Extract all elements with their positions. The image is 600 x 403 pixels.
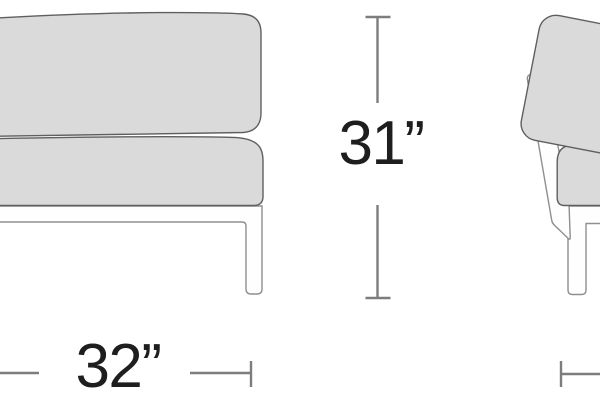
depth-dimension-partial (561, 361, 600, 387)
diagram-canvas: 32” 31” (0, 0, 600, 403)
front-frame-base (0, 206, 262, 294)
front-back-cushion (0, 13, 261, 137)
height-dimension-label: 31” (338, 109, 423, 178)
front-seat-cushion (0, 137, 263, 206)
sofa-side-view (518, 12, 600, 294)
side-back-cushion (518, 12, 600, 155)
side-frame-base (568, 206, 600, 295)
furniture-dimension-diagram: 32” 31” (0, 0, 600, 403)
width-dimension: 32” (0, 332, 251, 401)
sofa-front-view (0, 13, 263, 294)
side-seat-cushion (557, 145, 600, 206)
width-dimension-label: 32” (75, 332, 160, 401)
height-dimension: 31” (338, 17, 423, 298)
